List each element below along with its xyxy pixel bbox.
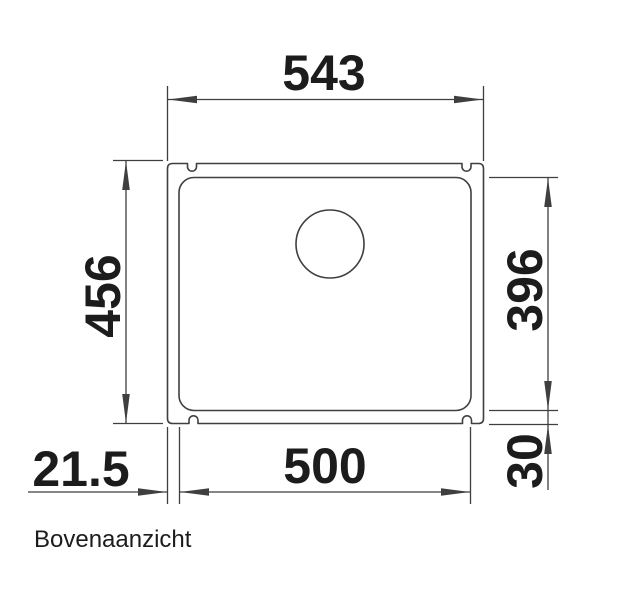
drain-hole-circle [296,210,364,278]
sink-bowl-outline [179,178,471,411]
arrowhead-right [454,96,483,104]
dim-side-rim: 21.5 [28,427,168,504]
arrowhead-down [122,394,130,423]
dim-label-543: 543 [282,45,365,101]
arrowhead-down [544,381,552,410]
arrowhead-up [544,178,552,207]
dim-label-396: 396 [497,248,553,331]
sink-top-view-drawing: 543 456 396 30 [0,0,634,600]
dim-label-456: 456 [75,254,131,337]
arrowhead-up [122,161,130,190]
dim-bowl-depth: 396 [489,178,558,411]
view-caption: Bovenaanzicht [34,526,192,553]
sink-outer-outline [168,164,484,424]
dim-outer-depth: 456 [75,161,163,424]
dim-label-21-5: 21.5 [32,441,129,497]
dim-bowl-width: 500 [180,427,471,504]
dim-label-30: 30 [497,433,553,489]
arrowhead-right [441,488,470,496]
arrowhead-left [168,96,197,104]
dim-label-500: 500 [283,438,366,494]
arrowhead-right [138,488,167,496]
technical-drawing-page: 543 456 396 30 [0,0,634,600]
arrowhead-left [180,488,209,496]
dim-bottom-rim: 30 [489,411,558,491]
dim-outer-width: 543 [168,45,484,161]
